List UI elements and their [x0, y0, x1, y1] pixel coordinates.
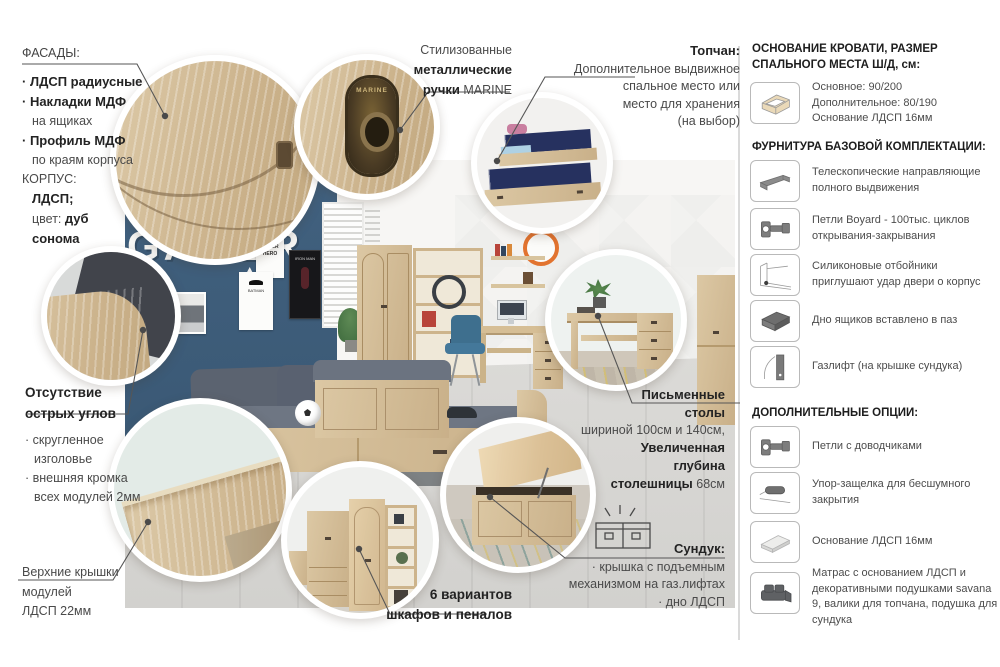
hardware-item-text: Телескопические направляющие полного выд…: [812, 165, 998, 196]
wall-shelf-2: [491, 284, 545, 288]
desks-line: Увеличенная: [641, 440, 725, 455]
bed-base-icon: [750, 82, 800, 124]
tops-line: Верхние крышки: [22, 563, 152, 583]
rounded-wood-headboard: [41, 287, 155, 386]
furniture-infographic: GAMER I'M A SUPER HERO BATMAN IRON MAN: [0, 0, 1000, 667]
batman-poster-text: BATMAN: [248, 288, 264, 293]
rounded-headboard-circle: [41, 246, 181, 386]
plant-pot: [345, 340, 357, 352]
chest-panel: [528, 501, 572, 537]
silicone-bumper-icon: [750, 254, 800, 296]
color-label: цвет:: [32, 212, 61, 226]
handle-pull-ring: [360, 112, 394, 152]
handles-line: металлические: [414, 62, 512, 77]
desk-pedestal-closeup: [637, 313, 673, 369]
drawer-line: [309, 567, 347, 568]
handles-line-bold: ручки: [423, 82, 460, 97]
book: [422, 311, 436, 327]
shelf-plant: [396, 552, 408, 564]
drawer-handle: [433, 450, 447, 454]
variants-line: 6 вариантов: [430, 587, 512, 602]
desk-under-shelf: [487, 348, 531, 353]
korpus-label: КОРПУС:: [22, 170, 154, 189]
wall-clock: [523, 230, 559, 266]
monitor-stand: [508, 318, 514, 324]
bed-base-line: Дополнительное: 80/190: [812, 96, 937, 112]
trundle-handle: [497, 196, 503, 199]
topchan-line: место для хранения: [565, 96, 740, 114]
hinge-icon: [750, 208, 800, 250]
shelf-line: [388, 566, 414, 569]
options-row: Петли с доводчиками: [750, 426, 998, 468]
topchan-title: Топчан:: [690, 43, 740, 58]
wardrobe-door-left: [362, 253, 384, 365]
wood-grain: [41, 287, 155, 386]
batman-poster: BATMAN: [239, 272, 273, 330]
chest-panel: [385, 388, 439, 430]
bench-chest: [315, 380, 449, 438]
hardware-item-text: Силиконовые отбойники приглушают удар дв…: [812, 259, 998, 290]
ldsp-base-icon: [750, 521, 800, 563]
iron-man-figure: [301, 267, 309, 289]
wardrobe-handle: [381, 305, 387, 308]
chest-panel: [323, 388, 377, 430]
push-latch-icon: [750, 472, 800, 514]
chest-line: · дно ЛДСП: [557, 594, 725, 612]
shelf-line: [388, 526, 414, 529]
drawer-handle: [651, 339, 657, 342]
hardware-title: ФУРНИТУРА БАЗОВОЙ КОМПЛЕКТАЦИИ:: [752, 140, 990, 156]
plant-leaves: [585, 279, 611, 299]
mattress-icon: [750, 572, 800, 614]
cabinet-handle: [713, 331, 719, 334]
bed-base-row: Основное: 90/200 Дополнительное: 80/190 …: [750, 80, 998, 127]
soccer-ball: [295, 400, 321, 426]
corners-annotation: Отсутствие острых углов · скругленное из…: [25, 383, 145, 507]
hardware-row: Силиконовые отбойники приглушают удар дв…: [750, 254, 998, 296]
facades-item-detail: на ящиках: [22, 112, 154, 131]
shelf-line: [388, 546, 414, 549]
hardware-row: Дно ящиков вставлено в паз: [750, 300, 998, 342]
chest-line: · крышка с подъемным: [557, 559, 725, 577]
desk-detail-circle: [545, 249, 687, 391]
chest-body: [472, 495, 576, 545]
korpus-value: ЛДСП;: [32, 191, 73, 206]
desk-leg-closeup: [571, 321, 578, 369]
hardware-row: Телескопические направляющие полного выд…: [750, 160, 998, 202]
chest-panel: [478, 501, 522, 537]
desks-line: Письменные: [642, 387, 725, 402]
drawer-bottom-icon: [750, 300, 800, 342]
variants-annotation: 6 вариантов шкафов и пеналов: [360, 585, 512, 625]
chest-annotation: Сундук: · крышка с подъемным механизмом …: [557, 540, 725, 611]
desks-line-bold: столешницы: [611, 476, 693, 491]
ship-wheel-decor: [432, 275, 466, 309]
iron-man-poster: IRON MAN: [289, 250, 321, 319]
desks-line: столы: [685, 405, 725, 420]
corners-bullet: · скругленное изголовье: [25, 431, 145, 469]
hardware-item-text: Дно ящиков вставлено в паз: [812, 313, 957, 329]
wall-shelf: [491, 256, 545, 260]
soft-close-hinge-icon: [750, 426, 800, 468]
options-item-text: Упор-защелка для бесшумного закрытия: [812, 477, 998, 508]
handles-line: Стилизованные: [350, 40, 512, 60]
corners-title: Отсутствие острых углов: [25, 385, 116, 421]
options-row: Основание ЛДСП 16мм: [750, 521, 998, 563]
topchan-line: (на выбор): [565, 113, 740, 131]
computer-monitor: [497, 300, 527, 320]
drawer-line: [309, 595, 347, 596]
options-item-text: Петли с доводчиками: [812, 439, 922, 455]
facades-item: · Профиль МДФ: [22, 133, 125, 148]
book: [507, 244, 512, 256]
book: [523, 272, 533, 284]
pillow: [507, 124, 527, 134]
drawer-line: [639, 349, 671, 350]
wardrobe: [357, 245, 412, 372]
chair-back: [451, 315, 481, 345]
desks-line-value: 68см: [693, 477, 725, 491]
door-handle: [325, 537, 331, 540]
hardware-row: Газлифт (на крышке сундука): [750, 346, 998, 388]
tops-line: модулей: [22, 583, 152, 603]
hardware-item-text: Петли Boyard - 100тыс. циклов открывания…: [812, 213, 998, 244]
tops-line: ЛДСП 22мм: [22, 602, 152, 622]
sneakers: [447, 407, 477, 418]
hardware-item-text: Газлифт (на крышке сундука): [812, 359, 962, 375]
shelf-item: [394, 514, 404, 524]
chair-seat: [445, 343, 485, 354]
facades-item-detail: по краям корпуса: [22, 151, 154, 170]
tops-annotation: Верхние крышки модулей ЛДСП 22мм: [22, 563, 152, 622]
bed-base-line: Основание ЛДСП 16мм: [812, 111, 937, 127]
bed-base-line: Основное: 90/200: [812, 80, 937, 96]
gas-lift-icon: [750, 346, 800, 388]
desk-shelf-closeup: [581, 335, 641, 341]
facades-item: · Накладки МДФ: [22, 94, 126, 109]
topchan-annotation: Топчан: Дополнительное выдвижное спально…: [565, 42, 740, 131]
facades-item: · ЛДСП радиусные: [22, 74, 142, 89]
corners-bullet: · внешняя кромка всех модулей 2мм: [25, 469, 145, 507]
options-item-text: Основание ЛДСП 16мм: [812, 534, 932, 550]
metal-handle-icon: [276, 141, 293, 169]
drawer-handle: [651, 321, 657, 324]
trundle-handle: [577, 190, 583, 193]
desks-line: глубина: [673, 458, 725, 473]
topchan-line: Дополнительное выдвижное: [565, 61, 740, 79]
bed-base-title: ОСНОВАНИЕ КРОВАТИ, РАЗМЕР СПАЛЬНОГО МЕСТ…: [752, 42, 990, 73]
telescopic-slide-icon: [750, 160, 800, 202]
chest-line: механизмом на газ.лифтах: [557, 576, 725, 594]
topchan-line: спальное место или: [565, 78, 740, 96]
drawer-line: [309, 581, 347, 582]
door-handle: [365, 559, 371, 562]
options-row: Матрас с основанием ЛДСП и декоративными…: [750, 566, 998, 628]
facades-title: ФАСАДЫ:: [22, 44, 154, 63]
bed-base-lines: Основное: 90/200 Дополнительное: 80/190 …: [812, 80, 937, 127]
options-item-text: Матрас с основанием ЛДСП и декоративными…: [812, 566, 998, 628]
facades-annotation: ФАСАДЫ: · ЛДСП радиусные · Накладки МДФ …: [22, 44, 154, 249]
bench-cushion: [313, 360, 451, 382]
cabinet-with-drawers: [307, 511, 349, 607]
book: [495, 244, 500, 256]
book: [501, 246, 506, 256]
handles-line-brand: MARINE: [460, 83, 512, 97]
chest-title: Сундук:: [674, 541, 725, 556]
variants-line: шкафов и пеналов: [386, 607, 512, 622]
small-desk: [289, 551, 309, 585]
drawer-line: [639, 331, 671, 332]
options-row: Упор-защелка для бесшумного закрытия: [750, 472, 998, 514]
drawer-handle: [651, 357, 657, 360]
bat-icon: [249, 280, 263, 285]
desks-line: шириной 100см и 140см,: [557, 422, 725, 439]
options-title: ДОПОЛНИТЕЛЬНЫЕ ОПЦИИ:: [752, 406, 990, 422]
monitor-screen: [500, 303, 524, 315]
desks-annotation: Письменные столы шириной 100см и 140см, …: [557, 386, 725, 493]
hardware-row: Петли Boyard - 100тыс. циклов открывания…: [750, 208, 998, 250]
handles-annotation: Стилизованные металлические ручки MARINE: [350, 40, 512, 100]
cabinet-line: [697, 345, 735, 347]
wardrobe-door-right: [387, 253, 409, 365]
